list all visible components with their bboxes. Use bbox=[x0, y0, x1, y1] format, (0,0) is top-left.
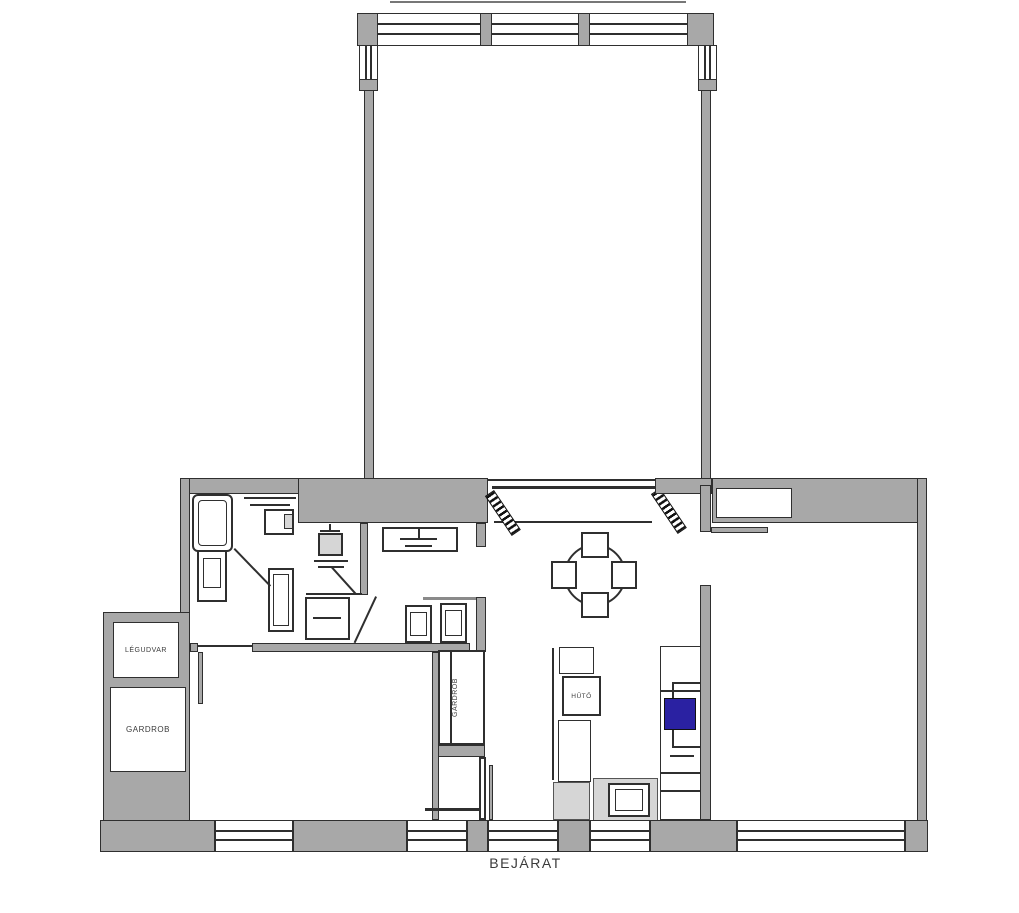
hall-threshold-line bbox=[425, 808, 479, 811]
bottom-wall-pier-1 bbox=[467, 820, 488, 852]
balcony-side-window-right bbox=[698, 45, 717, 80]
dining-chair-north bbox=[581, 532, 609, 558]
outer-wall-left-upper bbox=[180, 478, 190, 614]
bedroom-door-leaf bbox=[198, 652, 203, 704]
bottom-window-2 bbox=[407, 820, 467, 852]
partition-lower bbox=[700, 585, 711, 820]
light-well-room: LÉGUDVAR bbox=[113, 622, 179, 678]
stove-inner bbox=[615, 789, 643, 811]
hall-wardrobe-closet: GARDROB bbox=[438, 650, 485, 745]
radiator-inner bbox=[273, 574, 289, 626]
oven-underline bbox=[670, 755, 694, 757]
entrance-label: BEJÁRAT bbox=[468, 855, 583, 871]
vanity-faucet-bar2 bbox=[405, 545, 432, 547]
wc-line-1 bbox=[314, 560, 348, 562]
balcony-mullion-2 bbox=[578, 13, 590, 46]
balcony-wall-left bbox=[364, 90, 374, 480]
counter-long bbox=[558, 720, 591, 782]
outer-wall-right bbox=[917, 478, 927, 852]
closet-bottom-cap bbox=[438, 745, 485, 757]
vanity-faucet-stem bbox=[418, 529, 420, 538]
balcony-roof-line bbox=[390, 1, 686, 3]
balcony-top-window bbox=[357, 13, 714, 46]
toilet-bathroom-bowl bbox=[203, 558, 221, 588]
light-well-label: LÉGUDVAR bbox=[114, 623, 178, 677]
bottom-window-3 bbox=[590, 820, 650, 852]
mirror-shelf-line-2 bbox=[250, 504, 290, 506]
partition-upper bbox=[700, 485, 711, 532]
washer-b-door bbox=[445, 610, 462, 636]
shower-door-swing bbox=[354, 596, 377, 643]
washing-machine-door bbox=[284, 514, 293, 529]
entrance-door-bay bbox=[488, 820, 558, 852]
vanity-faucet-bar bbox=[400, 538, 437, 540]
bottom-wall-seg-2 bbox=[293, 820, 407, 852]
bathtub-inner bbox=[198, 500, 227, 546]
dining-chair-east bbox=[611, 561, 637, 589]
dining-chair-south bbox=[581, 592, 609, 618]
counter-top-cabinet bbox=[559, 647, 594, 674]
closet-depth-line bbox=[450, 652, 452, 743]
wc-cistern-tap-bar bbox=[320, 530, 340, 532]
bottom-wall-seg-1 bbox=[100, 820, 215, 852]
bottom-window-4 bbox=[737, 820, 905, 852]
sliding-door-leaf-left bbox=[485, 490, 521, 536]
wc-bottom-line bbox=[306, 593, 362, 595]
right-room-window-niche bbox=[716, 488, 792, 518]
balcony-corner-post-left bbox=[357, 13, 378, 46]
wardrobe-room-label: GARDROB bbox=[111, 688, 185, 771]
oven-highlight bbox=[664, 698, 696, 730]
balcony-corner-post-right bbox=[687, 13, 714, 46]
kitchen-opening-top-edge bbox=[488, 479, 655, 481]
hall-wardrobe-label: GARDROB bbox=[452, 652, 459, 743]
balcony-mullion-1 bbox=[480, 13, 492, 46]
bottom-window-1 bbox=[215, 820, 293, 852]
hall-partition-wall bbox=[479, 757, 486, 820]
bathroom-door-swing bbox=[234, 548, 272, 587]
bottom-wall-seg-3 bbox=[650, 820, 737, 852]
mirror-shelf-line-1 bbox=[244, 497, 296, 499]
entrance-door-leaf bbox=[489, 765, 493, 820]
top-wall-thick-mid bbox=[298, 478, 488, 523]
kitchen-opening-lintel bbox=[492, 486, 655, 489]
bottom-wall-seg-4 bbox=[905, 820, 928, 852]
wc-door-swing bbox=[331, 566, 357, 595]
washer-a-door bbox=[410, 612, 427, 636]
wardrobe-room: GARDROB bbox=[110, 687, 186, 772]
dining-chair-west bbox=[551, 561, 577, 589]
wc-right-wall bbox=[360, 523, 368, 595]
bedroom-door-opening-line bbox=[198, 645, 252, 647]
wc-hand-basin bbox=[318, 533, 343, 556]
fridge-label: HŰTŐ bbox=[564, 678, 599, 714]
fridge: HŰTŐ bbox=[562, 676, 601, 716]
sliding-door-leaf-right bbox=[651, 488, 687, 534]
bottom-wall-pier-2 bbox=[558, 820, 590, 852]
appliance-shelf-line bbox=[423, 597, 483, 600]
counter-floor-strip-left bbox=[553, 782, 590, 820]
bedroom-wall-left-stub bbox=[190, 643, 198, 652]
balcony-side-window-left bbox=[359, 45, 378, 80]
top-wall-bathroom bbox=[180, 478, 302, 494]
tall-cabinet-div-2 bbox=[660, 772, 702, 774]
bath2-wall-bottom bbox=[476, 597, 486, 652]
balcony-wall-right bbox=[701, 90, 711, 480]
shower-drain-line bbox=[313, 617, 341, 619]
partition-ledge bbox=[711, 527, 768, 533]
bath2-wall-top bbox=[476, 523, 486, 547]
tall-cabinet-div-3 bbox=[660, 790, 702, 792]
kitchen-opening-threshold bbox=[494, 521, 652, 523]
counter-side-line bbox=[552, 648, 554, 780]
floor-plan: LÉGUDVAR GARDROB GARDROB bbox=[0, 0, 1019, 913]
